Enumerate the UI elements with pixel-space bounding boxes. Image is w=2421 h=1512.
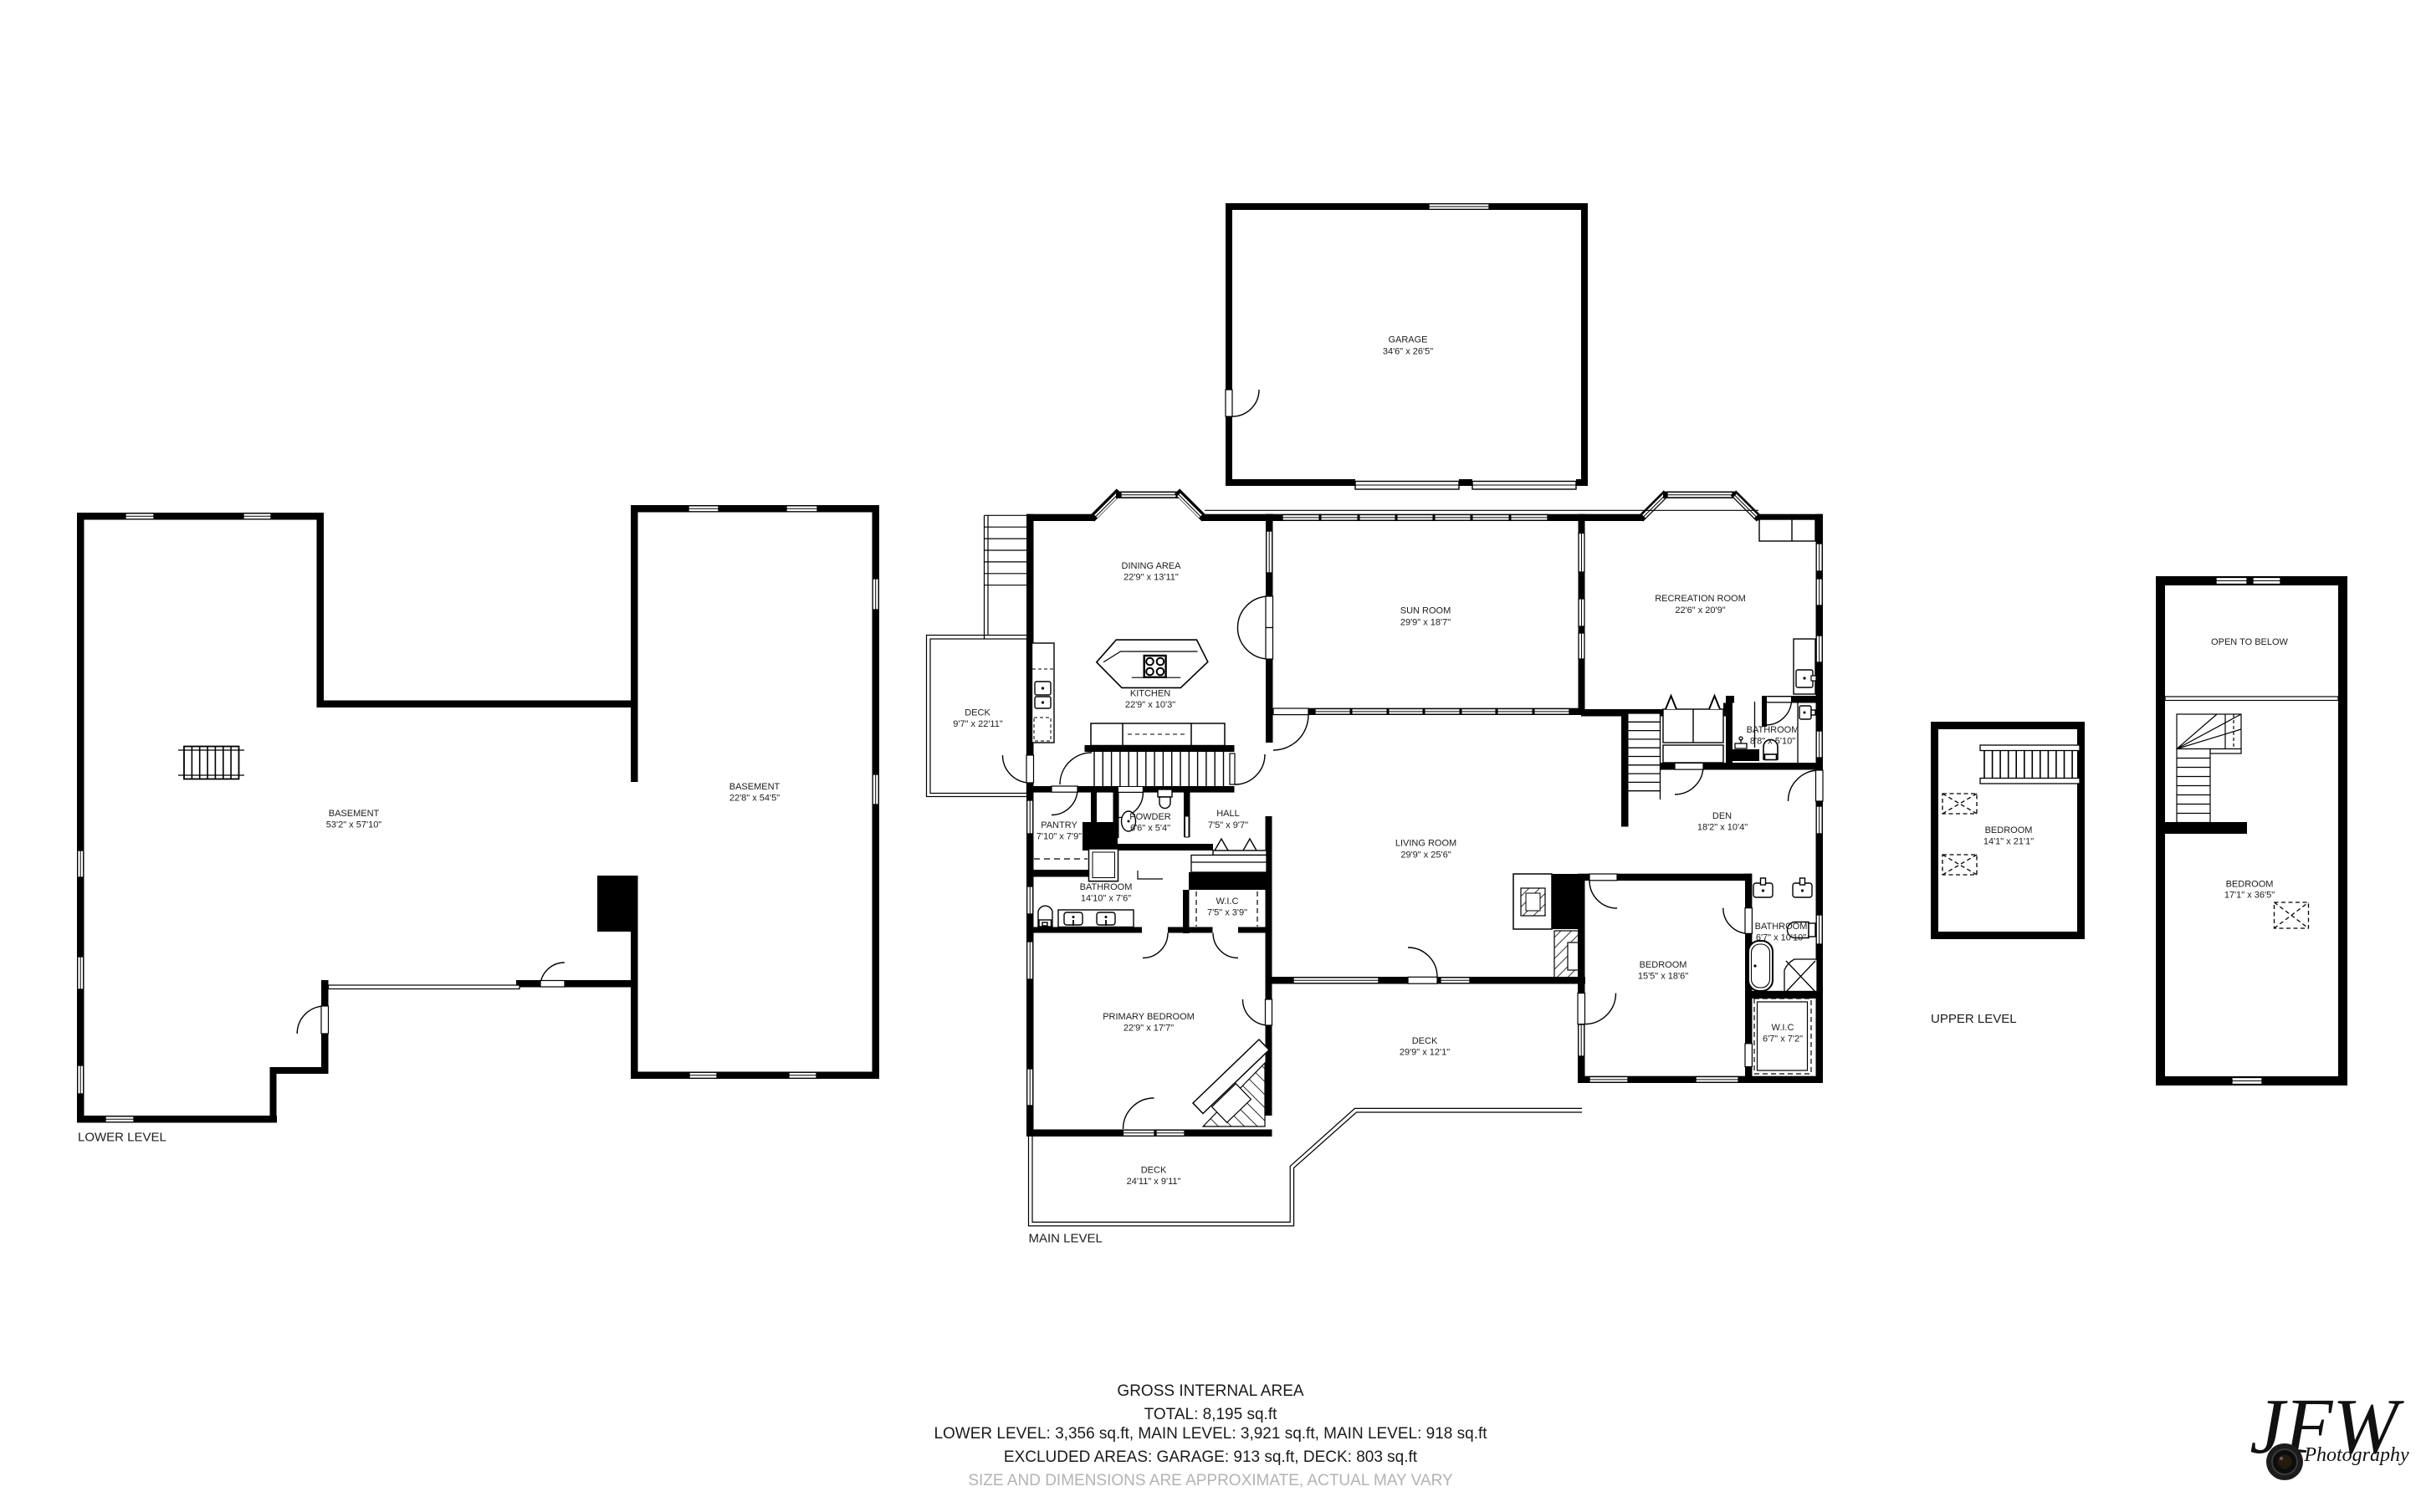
svg-text:GARAGE: GARAGE: [1388, 335, 1427, 345]
svg-text:BATHROOM: BATHROOM: [1080, 882, 1133, 892]
svg-text:SUN ROOM: SUN ROOM: [1400, 606, 1451, 616]
svg-text:Photography: Photography: [2303, 1444, 2409, 1466]
svg-text:24'11" x 9'11": 24'11" x 9'11": [1127, 1177, 1181, 1187]
svg-text:22'9" x 17'7": 22'9" x 17'7": [1123, 1024, 1174, 1034]
svg-text:18'2" x 10'4": 18'2" x 10'4": [1697, 823, 1748, 833]
svg-text:6'7" x 7'2": 6'7" x 7'2": [1763, 1034, 1803, 1045]
svg-text:POWDER: POWDER: [1129, 812, 1171, 822]
svg-text:22'9" x 10'3": 22'9" x 10'3": [1125, 700, 1175, 710]
svg-text:7'10" x 7'9": 7'10" x 7'9": [1036, 832, 1082, 842]
svg-text:UPPER LEVEL: UPPER LEVEL: [1931, 1012, 2017, 1026]
svg-text:DECK: DECK: [965, 708, 990, 718]
svg-text:DECK: DECK: [1412, 1036, 1438, 1046]
svg-text:29'9" x 25'6": 29'9" x 25'6": [1400, 850, 1451, 861]
svg-text:EXCLUDED AREAS: GARAGE: 913 sq: EXCLUDED AREAS: GARAGE: 913 sq.ft, DECK:…: [1004, 1448, 1418, 1466]
svg-text:RECREATION ROOM: RECREATION ROOM: [1655, 594, 1746, 604]
svg-text:22'8" x 54'5": 22'8" x 54'5": [729, 794, 780, 804]
svg-text:29'9" x 18'7": 29'9" x 18'7": [1400, 618, 1451, 628]
svg-text:PRIMARY BEDROOM: PRIMARY BEDROOM: [1103, 1012, 1195, 1022]
svg-text:BEDROOM: BEDROOM: [1985, 825, 2033, 835]
svg-text:29'9" x 12'1": 29'9" x 12'1": [1400, 1048, 1450, 1058]
svg-text:BEDROOM: BEDROOM: [1640, 960, 1687, 970]
svg-text:14'10" x 7'6": 14'10" x 7'6": [1081, 894, 1131, 904]
svg-text:BATHROOM: BATHROOM: [1747, 725, 1799, 735]
svg-text:6'6" x 5'4": 6'6" x 5'4": [1130, 824, 1170, 834]
svg-text:DINING AREA: DINING AREA: [1122, 561, 1182, 571]
svg-text:SIZE AND DIMENSIONS ARE APPROX: SIZE AND DIMENSIONS ARE APPROXIMATE, ACT…: [968, 1472, 1453, 1489]
svg-text:7'5" x 3'9": 7'5" x 3'9": [1207, 908, 1247, 918]
svg-text:9'7" x 22'11": 9'7" x 22'11": [953, 719, 1003, 729]
svg-text:BATHROOM: BATHROOM: [1755, 922, 1808, 932]
svg-text:LOWER LEVEL: 3,356 sq.ft, MAIN: LOWER LEVEL: 3,356 sq.ft, MAIN LEVEL: 3,…: [934, 1425, 1487, 1443]
svg-text:34'6" x 26'5": 34'6" x 26'5": [1383, 347, 1433, 357]
svg-text:8'8" x 5'10": 8'8" x 5'10": [1750, 737, 1795, 747]
svg-text:BASEMENT: BASEMENT: [729, 782, 781, 792]
svg-text:22'6" x 20'9": 22'6" x 20'9": [1675, 605, 1725, 616]
svg-text:53'2" x 57'10": 53'2" x 57'10": [326, 820, 382, 830]
svg-text:GROSS INTERNAL AREA: GROSS INTERNAL AREA: [1117, 1382, 1303, 1400]
svg-text:7'5" x 9'7": 7'5" x 9'7": [1208, 820, 1248, 830]
svg-text:TOTAL: 8,195 sq.ft: TOTAL: 8,195 sq.ft: [1144, 1406, 1277, 1423]
svg-text:PANTRY: PANTRY: [1041, 820, 1077, 830]
svg-text:6'7" x 10'10": 6'7" x 10'10": [1756, 933, 1806, 943]
svg-text:DECK: DECK: [1141, 1166, 1167, 1176]
svg-text:BASEMENT: BASEMENT: [329, 809, 380, 819]
svg-text:W.I.C: W.I.C: [1216, 896, 1239, 907]
svg-text:22'9" x 13'11": 22'9" x 13'11": [1123, 573, 1179, 583]
svg-text:LIVING ROOM: LIVING ROOM: [1395, 839, 1456, 849]
svg-text:15'5" x 18'6": 15'5" x 18'6": [1638, 972, 1688, 982]
svg-text:DEN: DEN: [1712, 811, 1732, 821]
svg-text:LOWER LEVEL: LOWER LEVEL: [78, 1131, 166, 1145]
svg-text:MAIN LEVEL: MAIN LEVEL: [1029, 1232, 1103, 1246]
svg-text:KITCHEN: KITCHEN: [1130, 689, 1170, 699]
svg-text:HALL: HALL: [1216, 809, 1240, 819]
svg-text:17'1" x 36'5": 17'1" x 36'5": [2224, 891, 2275, 901]
svg-text:BEDROOM: BEDROOM: [2226, 880, 2274, 890]
svg-text:W.I.C: W.I.C: [1772, 1023, 1794, 1033]
svg-text:OPEN TO BELOW: OPEN TO BELOW: [2211, 637, 2289, 647]
svg-text:14'1" x 21'1": 14'1" x 21'1": [1983, 837, 2034, 847]
